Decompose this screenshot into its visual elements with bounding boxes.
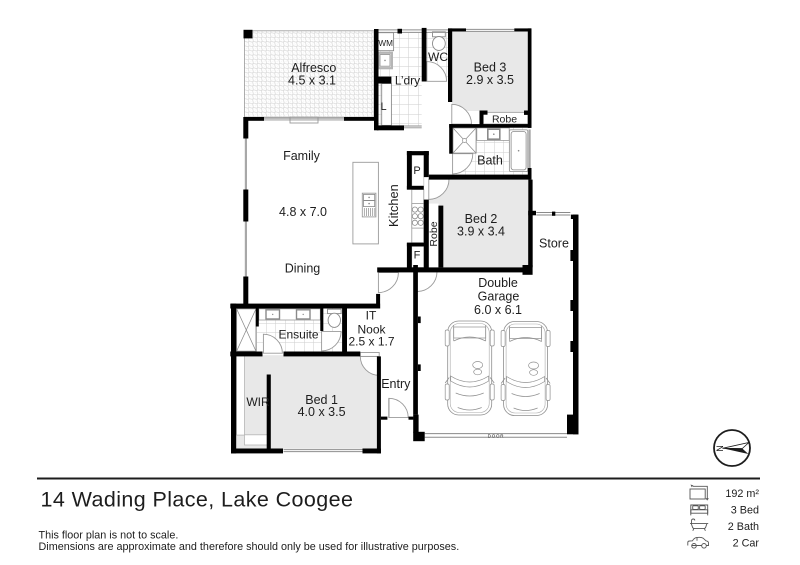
svg-text:Robe: Robe bbox=[428, 221, 440, 246]
svg-text:Kitchen: Kitchen bbox=[386, 184, 401, 227]
svg-text:3 Bed: 3 Bed bbox=[731, 505, 759, 517]
svg-text:Dimensions are approximate and: Dimensions are approximate and therefore… bbox=[39, 541, 460, 553]
svg-text:IT: IT bbox=[366, 309, 377, 323]
svg-text:2 Bath: 2 Bath bbox=[728, 521, 759, 533]
svg-text:4.5 x 3.1: 4.5 x 3.1 bbox=[288, 74, 336, 88]
svg-text:WC: WC bbox=[428, 50, 448, 64]
svg-text:Dining: Dining bbox=[285, 262, 320, 276]
svg-text:Ensuite: Ensuite bbox=[278, 328, 318, 342]
svg-text:P: P bbox=[413, 165, 420, 177]
svg-text:WIR: WIR bbox=[246, 395, 270, 409]
svg-text:6.0 x 6.1: 6.0 x 6.1 bbox=[474, 303, 522, 317]
svg-text:4.8 x 7.0: 4.8 x 7.0 bbox=[279, 205, 327, 219]
svg-text:4.0 x 3.5: 4.0 x 3.5 bbox=[298, 405, 346, 419]
svg-text:N: N bbox=[715, 445, 725, 452]
svg-text:Double: Double bbox=[478, 276, 518, 290]
svg-text:DOOR: DOOR bbox=[488, 434, 505, 439]
svg-text:Robe: Robe bbox=[492, 113, 517, 125]
svg-text:L’dry: L’dry bbox=[395, 74, 420, 88]
svg-text:Bath: Bath bbox=[477, 154, 503, 168]
svg-text:This floor plan is not to scal: This floor plan is not to scale. bbox=[39, 529, 179, 541]
svg-text:2.9 x 3.5: 2.9 x 3.5 bbox=[466, 73, 514, 87]
svg-text:3.9 x 3.4: 3.9 x 3.4 bbox=[457, 225, 505, 239]
svg-text:2.5 x 1.7: 2.5 x 1.7 bbox=[348, 335, 394, 349]
svg-text:Family: Family bbox=[283, 149, 321, 163]
svg-text:192 m²: 192 m² bbox=[725, 488, 759, 500]
svg-text:2 Car: 2 Car bbox=[733, 538, 760, 550]
svg-text:F: F bbox=[414, 249, 421, 261]
svg-text:Store: Store bbox=[539, 237, 569, 251]
svg-text:L: L bbox=[381, 101, 387, 113]
svg-text:14 Wading Place, Lake Coogee: 14 Wading Place, Lake Coogee bbox=[41, 487, 354, 511]
svg-text:Garage: Garage bbox=[478, 290, 520, 304]
svg-text:Entry: Entry bbox=[381, 377, 411, 391]
svg-text:WM: WM bbox=[378, 39, 393, 48]
